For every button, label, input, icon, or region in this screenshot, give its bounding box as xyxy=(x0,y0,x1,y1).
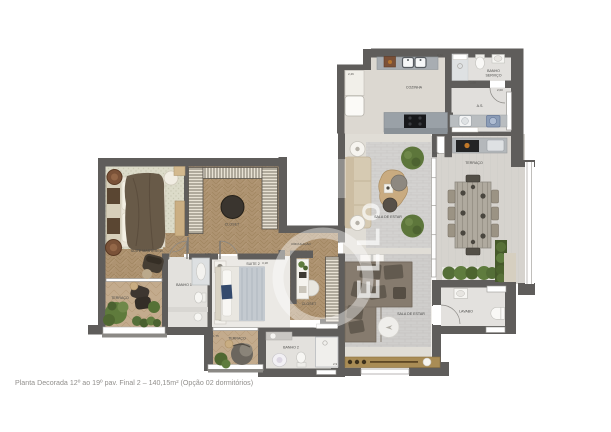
svg-text:Planta Decorada 12º ao 19º pav: Planta Decorada 12º ao 19º pav. Final 2 … xyxy=(15,379,253,387)
svg-text:2,72: 2,72 xyxy=(437,53,443,57)
svg-text:BANHO 1: BANHO 1 xyxy=(176,283,192,287)
svg-text:BANHO: BANHO xyxy=(487,69,500,73)
svg-text:2,9: 2,9 xyxy=(333,362,338,366)
svg-text:SUITE MASTER: SUITE MASTER xyxy=(131,249,158,253)
svg-text:SALA DE ESTAR: SALA DE ESTAR xyxy=(397,312,425,316)
svg-text:TERRAÇO: TERRAÇO xyxy=(111,296,129,300)
svg-text:SUITE 2: SUITE 2 xyxy=(246,262,260,266)
svg-text:TERRAÇO: TERRAÇO xyxy=(465,161,483,165)
svg-text:3,18: 3,18 xyxy=(262,261,268,265)
svg-text:1,75: 1,75 xyxy=(213,334,219,338)
svg-text:1,41: 1,41 xyxy=(433,151,439,155)
svg-text:LAVABO: LAVABO xyxy=(459,310,473,314)
svg-text:COZINHA: COZINHA xyxy=(406,86,423,90)
svg-text:2,08: 2,08 xyxy=(470,81,476,85)
svg-text:2,46: 2,46 xyxy=(348,72,354,76)
svg-text:SALA DE ESTAR: SALA DE ESTAR xyxy=(374,215,402,219)
svg-text:TERRAÇO: TERRAÇO xyxy=(228,337,246,341)
svg-text:2,00: 2,00 xyxy=(497,88,503,92)
svg-text:CLOSET: CLOSET xyxy=(302,302,317,306)
svg-text:3,96: 3,96 xyxy=(157,249,163,253)
svg-text:CLOSET: CLOSET xyxy=(225,223,240,227)
svg-text:CIRCULAÇÃO: CIRCULAÇÃO xyxy=(291,241,311,246)
svg-text:BANHO 2: BANHO 2 xyxy=(283,346,299,350)
svg-text:SERVIÇO: SERVIÇO xyxy=(485,74,501,78)
svg-text:ELLo: ELLo xyxy=(351,196,387,300)
svg-text:A.S.: A.S. xyxy=(477,104,484,108)
svg-text:1,26: 1,26 xyxy=(205,252,211,256)
